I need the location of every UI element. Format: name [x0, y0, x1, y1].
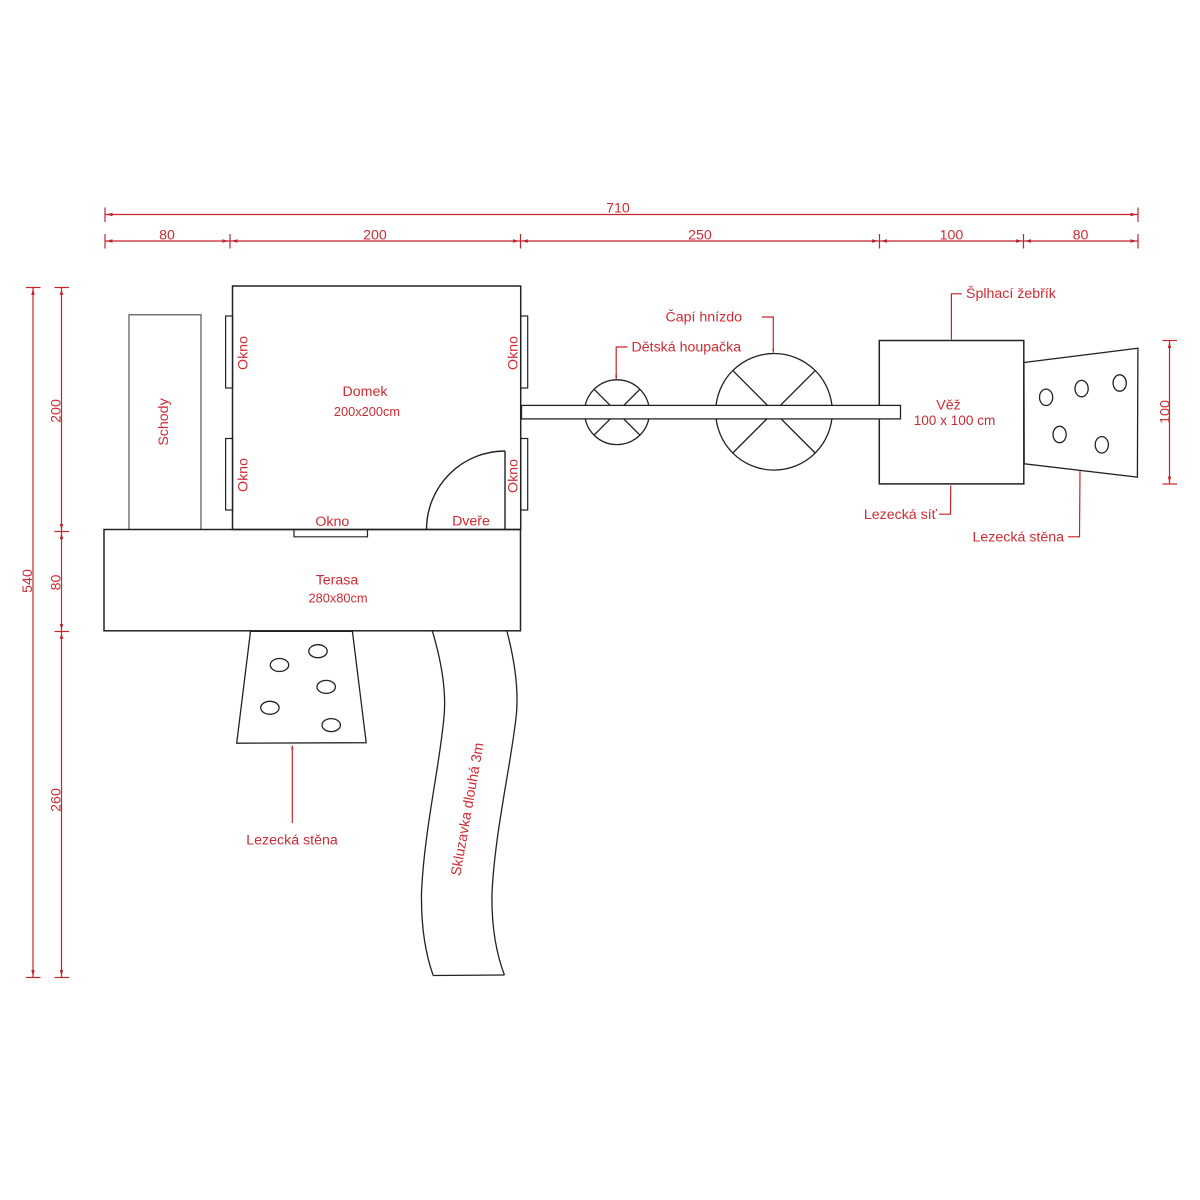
svg-text:Věž: Věž: [936, 398, 960, 414]
svg-text:200: 200: [363, 228, 387, 244]
svg-text:Dveře: Dveře: [452, 514, 490, 530]
svg-text:250: 250: [688, 228, 712, 244]
svg-text:80: 80: [1073, 228, 1089, 244]
svg-text:Šplhací žebřík: Šplhací žebřík: [966, 285, 1057, 302]
svg-text:Skluzavka dlouhá 3m: Skluzavka dlouhá 3m: [448, 742, 487, 878]
svg-text:540: 540: [20, 569, 36, 593]
svg-text:Lezecká stěna: Lezecká stěna: [246, 833, 338, 849]
svg-text:Okno: Okno: [506, 336, 522, 370]
svg-text:Terasa: Terasa: [316, 573, 359, 589]
svg-text:80: 80: [48, 575, 64, 591]
svg-text:Dětská houpačka: Dětská houpačka: [632, 340, 742, 356]
svg-text:Okno: Okno: [236, 336, 252, 370]
svg-text:80: 80: [159, 228, 175, 244]
svg-text:Lezecká stěna: Lezecká stěna: [973, 530, 1065, 546]
svg-text:Okno: Okno: [236, 458, 252, 492]
svg-text:100: 100: [1158, 400, 1174, 424]
svg-text:100: 100: [940, 228, 964, 244]
svg-text:280x80cm: 280x80cm: [308, 591, 367, 606]
svg-text:200x200cm: 200x200cm: [334, 404, 400, 419]
svg-text:Domek: Domek: [343, 384, 389, 400]
svg-text:200: 200: [48, 399, 64, 423]
svg-text:Okno: Okno: [506, 459, 522, 493]
svg-text:Okno: Okno: [315, 514, 349, 530]
svg-text:Lezecká síť: Lezecká síť: [864, 507, 938, 523]
svg-text:Schody: Schody: [156, 397, 172, 445]
svg-text:710: 710: [606, 201, 630, 217]
svg-text:Čapí hnízdo: Čapí hnízdo: [665, 309, 742, 326]
svg-text:260: 260: [48, 788, 64, 812]
svg-text:100 x 100 cm: 100 x 100 cm: [914, 413, 996, 428]
